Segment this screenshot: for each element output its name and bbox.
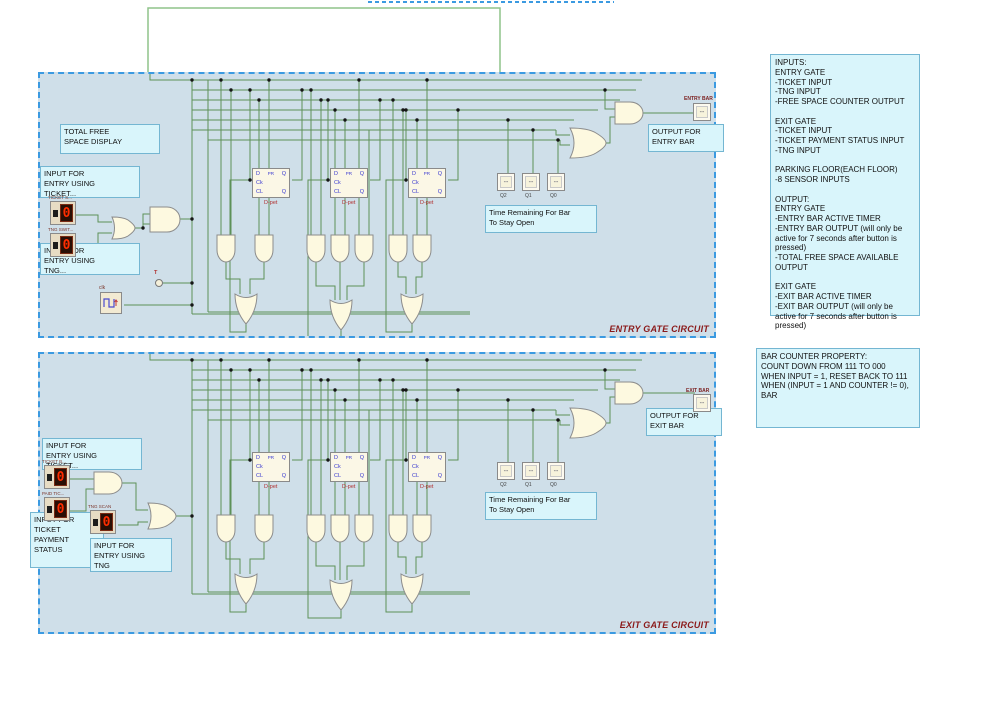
entry-circuit-schematic bbox=[40, 74, 714, 336]
exit-gate-circuit-block: EXIT GATE CIRCUIT bbox=[38, 352, 716, 634]
exit-bar-output-pin: -- bbox=[693, 394, 711, 412]
clock-wave-icon bbox=[103, 297, 119, 309]
switch-label: TNG SWIT... bbox=[48, 227, 73, 232]
tng-scan-switch[interactable]: 0 bbox=[90, 510, 116, 534]
switch-label: PAID TIC... bbox=[42, 491, 64, 496]
switch-handle-icon bbox=[47, 474, 52, 481]
flipflop-caption: D-pet bbox=[342, 484, 355, 490]
q1-label: Q1 bbox=[525, 482, 532, 488]
flipflop-caption: D-pet bbox=[420, 484, 433, 490]
exit-circuit-caption: EXIT GATE CIRCUIT bbox=[620, 620, 709, 630]
switch-handle-icon bbox=[47, 506, 52, 513]
label-entry-input-ticket: INPUT FOR ENTRY USING TICKET... bbox=[40, 166, 140, 198]
d-flipflop: DPRQ Ck CLQ bbox=[408, 168, 446, 198]
output-pin-q2: -- bbox=[497, 462, 515, 480]
logisim-canvas: { "colors": { "wire": "#5d9158", "wire_l… bbox=[0, 0, 987, 716]
or-gate bbox=[112, 217, 135, 239]
clock-label: clk bbox=[99, 285, 105, 291]
and-gate bbox=[150, 207, 180, 232]
switch-handle-icon bbox=[53, 210, 58, 217]
external-wire bbox=[148, 8, 500, 72]
ticket-switch[interactable]: 0 bbox=[50, 201, 76, 225]
q2-label: Q2 bbox=[500, 482, 507, 488]
label-exit-input-tng: INPUT FOR ENTRY USING TNG bbox=[90, 538, 172, 572]
switch-handle-icon bbox=[53, 242, 58, 249]
q1-label: Q1 bbox=[525, 193, 532, 199]
or-gate bbox=[148, 503, 176, 529]
switch-label: TICKET S... bbox=[48, 195, 72, 200]
t-input-pin[interactable] bbox=[156, 280, 163, 287]
q0-label: Q0 bbox=[550, 482, 557, 488]
d-flipflop: DPRQ Ck CLQ bbox=[252, 452, 290, 482]
q2-label: Q2 bbox=[500, 193, 507, 199]
switch-label: TICKET B... bbox=[42, 459, 66, 464]
seven-seg-digit: 0 bbox=[60, 204, 73, 222]
flipflop-caption: D-pet bbox=[420, 200, 433, 206]
d-flipflop: DPRQ Ck CLQ bbox=[330, 452, 368, 482]
entry-gate-circuit-block: ENTRY GATE CIRCUIT bbox=[38, 72, 716, 338]
t-pin-label: T bbox=[154, 270, 157, 276]
d-flipflop: DPRQ Ck CLQ bbox=[408, 452, 446, 482]
output-pin-q2: -- bbox=[497, 173, 515, 191]
output-pin-q0: -- bbox=[547, 462, 565, 480]
paid-ticket-switch[interactable]: 0 bbox=[44, 497, 70, 521]
label-output-entry-bar: OUTPUT FOR ENTRY BAR bbox=[648, 124, 724, 152]
output-pin-q1: -- bbox=[522, 173, 540, 191]
switch-handle-icon bbox=[93, 519, 98, 526]
seven-seg-digit: 0 bbox=[100, 513, 113, 531]
seven-seg-digit: 0 bbox=[54, 500, 67, 518]
d-flipflop: DPRQ Ck CLQ bbox=[330, 168, 368, 198]
label-exit-time-remaining: Time Remaining For Bar To Stay Open bbox=[485, 492, 597, 520]
entry-circuit-caption: ENTRY GATE CIRCUIT bbox=[609, 324, 709, 334]
flipflop-caption: D-pet bbox=[264, 200, 277, 206]
ticket-button-switch[interactable]: 0 bbox=[44, 465, 70, 489]
output-pin-q0: -- bbox=[547, 173, 565, 191]
entry-bar-output-pin: -- bbox=[693, 103, 711, 121]
flipflop-caption: D-pet bbox=[264, 484, 277, 490]
switch-label: TNG SCAN bbox=[88, 504, 111, 509]
output-pin-q1: -- bbox=[522, 462, 540, 480]
label-output-exit-bar: OUTPUT FOR EXIT BAR bbox=[646, 408, 722, 436]
label-total-free-space: TOTAL FREE SPACE DISPLAY bbox=[60, 124, 160, 154]
bar-counter-note: BAR COUNTER PROPERTY: COUNT DOWN FROM 11… bbox=[756, 348, 920, 428]
entry-bar-pin-label: ENTRY BAR bbox=[684, 96, 713, 102]
io-summary-note: INPUTS: ENTRY GATE -TICKET INPUT -TNG IN… bbox=[770, 54, 920, 316]
and-gate bbox=[94, 472, 122, 494]
seven-seg-digit: 0 bbox=[60, 236, 73, 254]
q0-label: Q0 bbox=[550, 193, 557, 199]
tng-switch[interactable]: 0 bbox=[50, 233, 76, 257]
clock-component bbox=[100, 292, 122, 314]
label-entry-time-remaining: Time Remaining For Bar To Stay Open bbox=[485, 205, 597, 233]
exit-circuit-schematic bbox=[40, 354, 714, 632]
flipflop-caption: D-pet bbox=[342, 200, 355, 206]
seven-seg-digit: 0 bbox=[54, 468, 67, 486]
d-flipflop: DPRQ Ck CLQ bbox=[252, 168, 290, 198]
